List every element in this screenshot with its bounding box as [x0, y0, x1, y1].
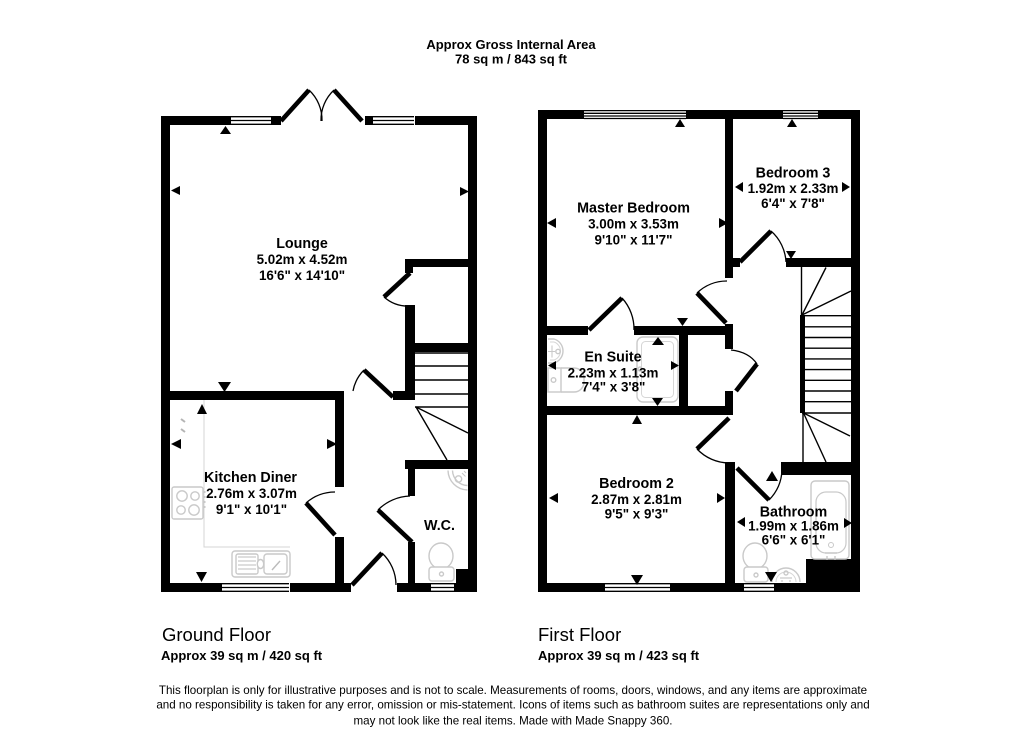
svg-text:2.23m x 1.13m: 2.23m x 1.13m [568, 366, 659, 381]
svg-text:Lounge: Lounge [276, 236, 328, 252]
svg-text:Ground Floor: Ground Floor [162, 624, 271, 645]
svg-text:1.92m x 2.33m: 1.92m x 2.33m [748, 181, 839, 196]
svg-text:2.76m x 3.07m: 2.76m x 3.07m [206, 486, 297, 501]
svg-text:Approx 39 sq m / 420 sq ft: Approx 39 sq m / 420 sq ft [161, 648, 323, 663]
svg-text:Kitchen Diner: Kitchen Diner [204, 470, 297, 486]
svg-text:78 sq m / 843 sq ft: 78 sq m / 843 sq ft [455, 52, 568, 67]
svg-text:Bedroom 3: Bedroom 3 [756, 166, 831, 182]
svg-text:16'6" x 14'10": 16'6" x 14'10" [259, 268, 345, 283]
svg-text:9'1" x 10'1": 9'1" x 10'1" [216, 502, 287, 517]
svg-text:1.99m x 1.86m: 1.99m x 1.86m [748, 519, 839, 534]
svg-text:3.00m x 3.53m: 3.00m x 3.53m [588, 217, 679, 232]
svg-text:9'5" x 9'3": 9'5" x 9'3" [605, 507, 669, 522]
svg-text:may not look like the real ite: may not look like the real items. Made w… [354, 715, 673, 728]
svg-text:Approx Gross Internal Area: Approx Gross Internal Area [426, 37, 596, 52]
svg-text:En Suite: En Suite [584, 350, 641, 366]
svg-text:2.87m x 2.81m: 2.87m x 2.81m [591, 492, 682, 507]
svg-text:This floorplan is only for ill: This floorplan is only for illustrative … [159, 684, 867, 697]
svg-text:5.02m x 4.52m: 5.02m x 4.52m [257, 252, 348, 267]
svg-text:and no responsibility is taken: and no responsibility is taken for any e… [156, 699, 869, 712]
svg-text:Approx 39 sq m / 423 sq ft: Approx 39 sq m / 423 sq ft [538, 648, 700, 663]
svg-text:6'6" x 6'1": 6'6" x 6'1" [762, 533, 826, 548]
svg-text:First Floor: First Floor [538, 624, 621, 645]
svg-text:Master Bedroom: Master Bedroom [577, 201, 690, 217]
svg-text:7'4" x 3'8": 7'4" x 3'8" [582, 380, 646, 395]
svg-text:Bedroom 2: Bedroom 2 [599, 476, 674, 492]
svg-text:W.C.: W.C. [424, 518, 455, 534]
svg-text:6'4" x 7'8": 6'4" x 7'8" [761, 196, 825, 211]
svg-text:9'10" x 11'7": 9'10" x 11'7" [595, 233, 673, 248]
